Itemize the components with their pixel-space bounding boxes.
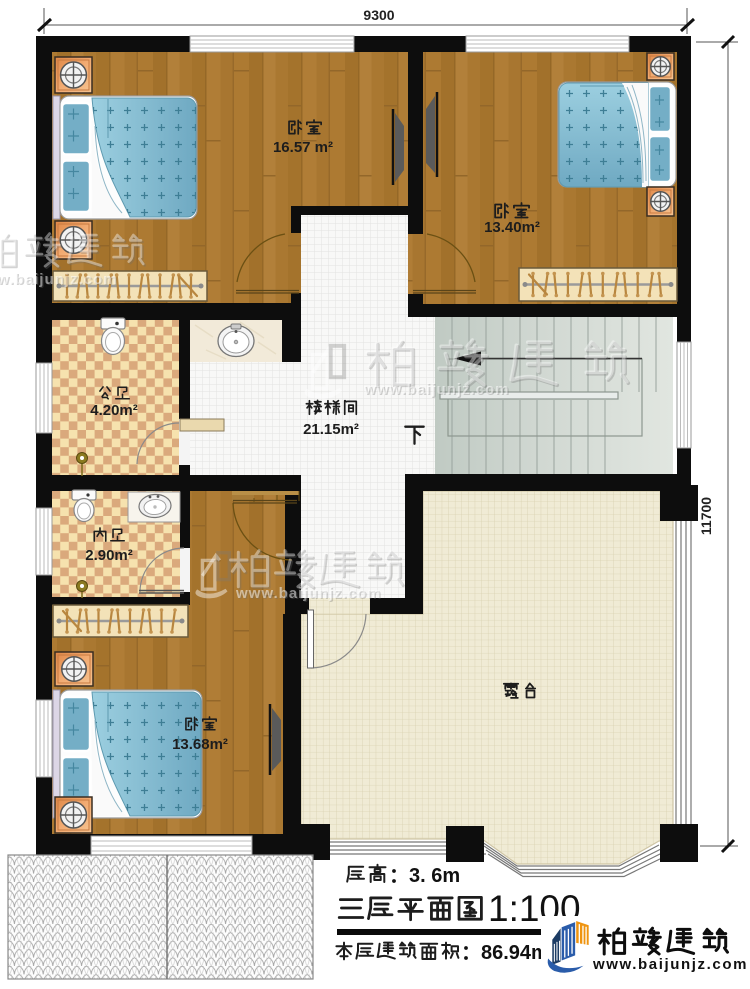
svg-text:www.baijunjz.com: www.baijunjz.com [363,381,509,398]
svg-text:2.90m²: 2.90m² [85,547,133,564]
svg-text:www.baijunjz.com: www.baijunjz.com [592,956,748,973]
svg-text:www.baijunjz.com: www.baijunjz.com [235,585,381,602]
svg-text:13.40m²: 13.40m² [484,219,540,236]
svg-text:21.15m²: 21.15m² [303,421,359,438]
svg-text:4.20m²: 4.20m² [90,402,138,419]
svg-text:16.57 m²: 16.57 m² [273,139,333,156]
svg-text:9300: 9300 [363,7,394,23]
svg-text:11700: 11700 [698,497,714,535]
svg-text:13.68m²: 13.68m² [172,736,228,753]
svg-text:www.baijunjz.com: www.baijunjz.com [0,271,117,288]
svg-text:：3. 6m: ：3. 6m [389,865,460,887]
